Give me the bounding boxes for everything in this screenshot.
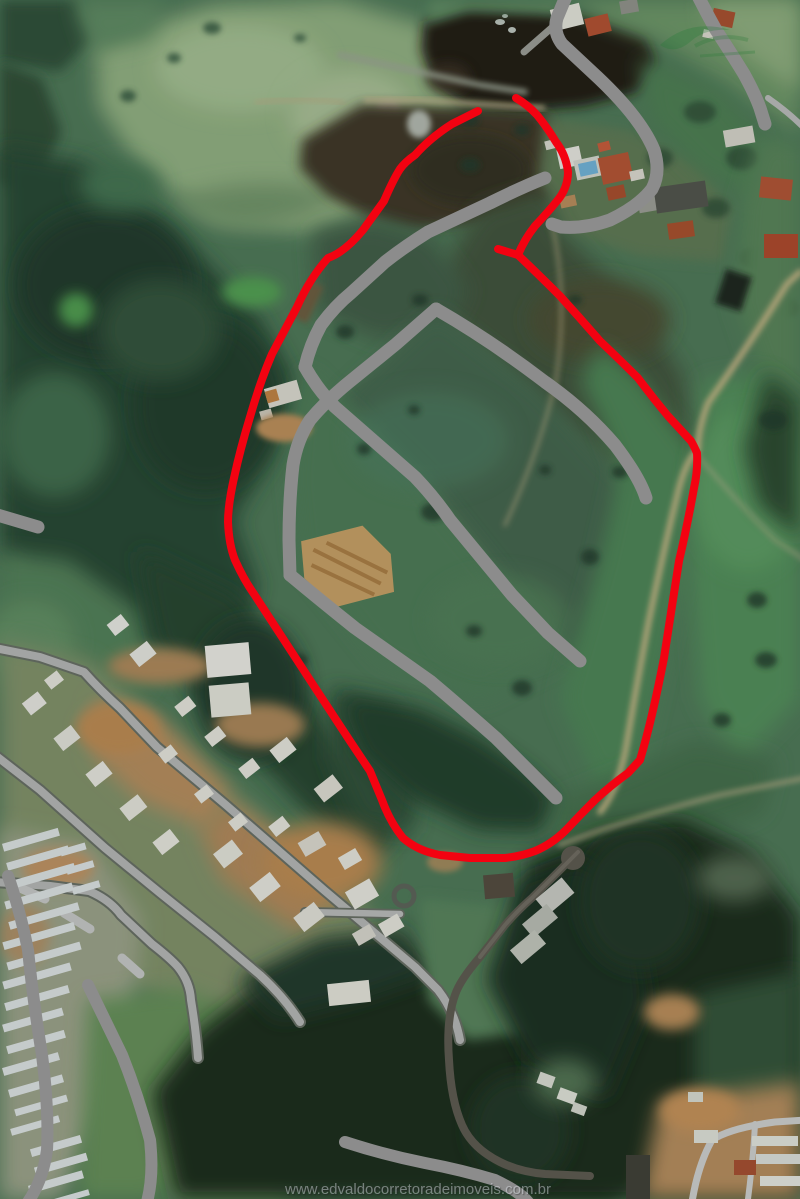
svg-text:www.edvaldocorretoradeimoveis.: www.edvaldocorretoradeimoveis.com.br — [284, 1181, 551, 1198]
